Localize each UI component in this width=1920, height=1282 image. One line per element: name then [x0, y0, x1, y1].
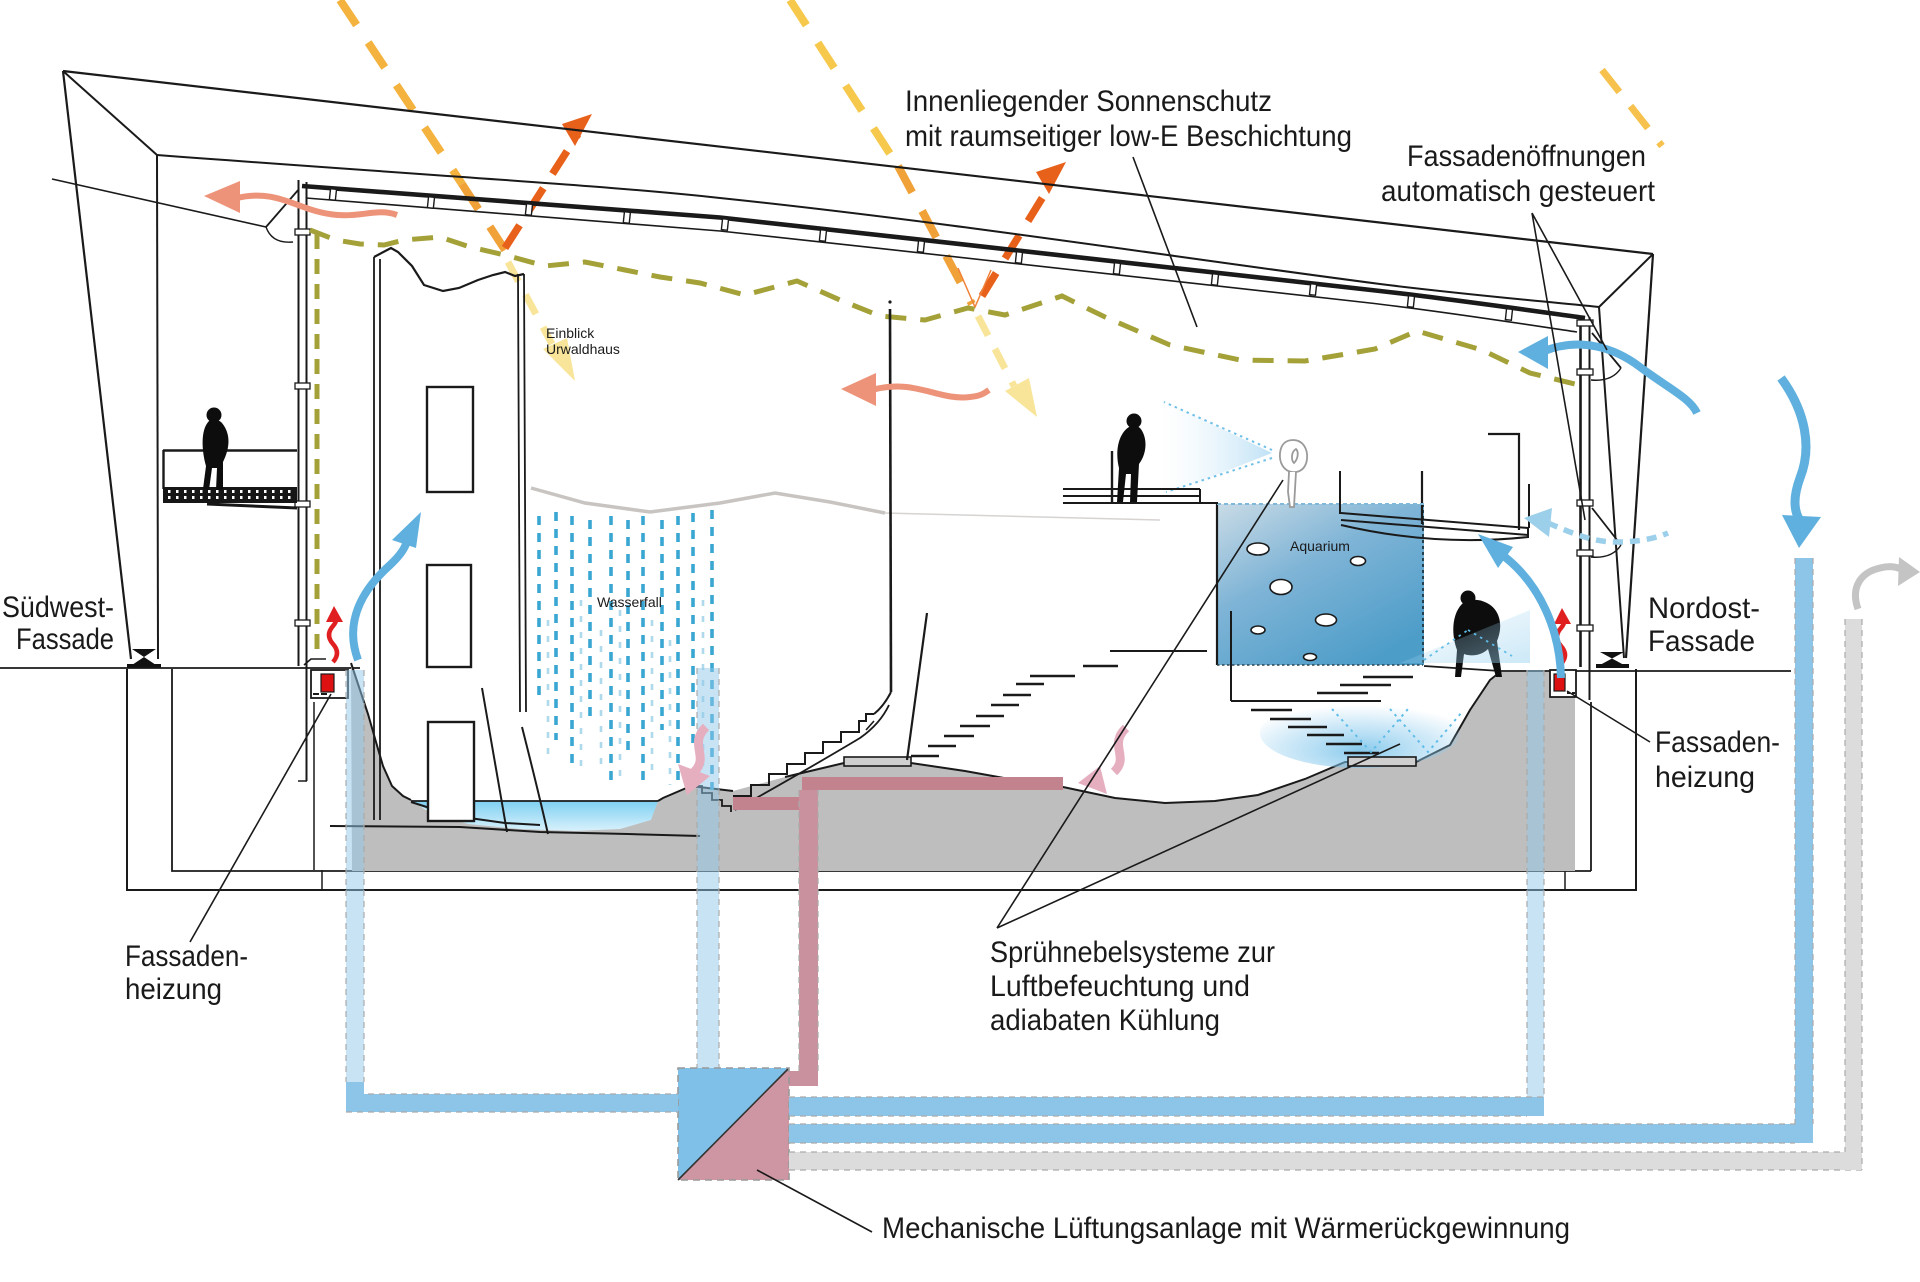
svg-text:Einblick: Einblick [546, 325, 595, 341]
svg-text:Mechanische Lüftungsanlage mit: Mechanische Lüftungsanlage mit Wärmerück… [882, 1212, 1570, 1245]
svg-text:Fassadenöffnungen: Fassadenöffnungen [1407, 140, 1646, 173]
svg-text:Fassade: Fassade [1648, 625, 1755, 658]
svg-text:Luftbefeuchtung und: Luftbefeuchtung und [990, 970, 1250, 1003]
svg-text:heizung: heizung [1655, 761, 1755, 794]
svg-text:Wasserfall: Wasserfall [597, 594, 662, 610]
svg-text:Aquarium: Aquarium [1290, 538, 1350, 554]
svg-text:mit raumseitiger low-E Beschic: mit raumseitiger low-E Beschichtung [905, 120, 1352, 153]
svg-text:Fassade: Fassade [16, 623, 114, 656]
svg-text:Urwaldhaus: Urwaldhaus [546, 341, 620, 357]
svg-text:automatisch gesteuert: automatisch gesteuert [1381, 175, 1656, 208]
svg-text:heizung: heizung [125, 973, 222, 1006]
svg-text:Sprühnebelsysteme zur: Sprühnebelsysteme zur [990, 936, 1275, 969]
svg-text:adiabaten Kühlung: adiabaten Kühlung [990, 1004, 1220, 1037]
svg-text:Südwest-: Südwest- [2, 591, 114, 624]
svg-text:Fassaden-: Fassaden- [125, 940, 248, 973]
svg-text:Nordost-: Nordost- [1648, 592, 1760, 625]
svg-text:Fassaden-: Fassaden- [1655, 726, 1780, 759]
svg-text:Innenliegender Sonnenschutz: Innenliegender Sonnenschutz [905, 85, 1272, 118]
